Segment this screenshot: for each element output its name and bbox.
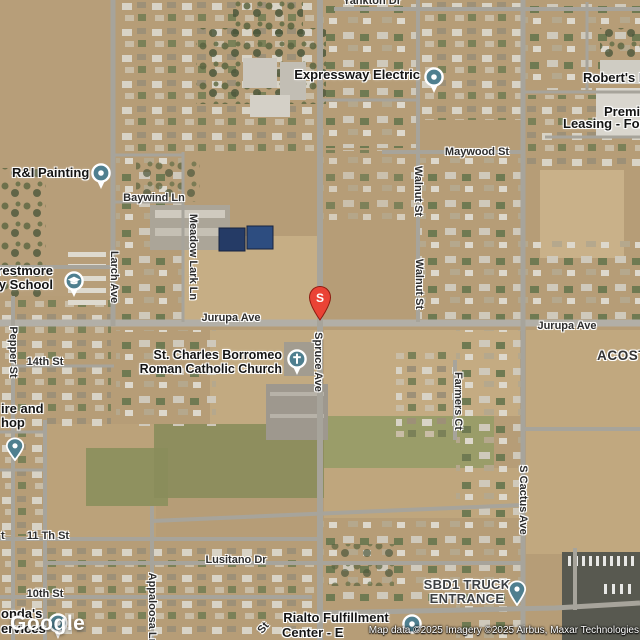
street-label-jurupa-ave-west: Jurupa Ave: [201, 312, 260, 324]
poi-label-school-line1: restmore: [0, 264, 53, 278]
dot-icon: [514, 586, 519, 591]
map-canvas[interactable]: Yankton Dr Jurupa Ave Jurupa Ave Maywood…: [0, 0, 640, 640]
area-label-acosta: ACOSTA: [597, 350, 640, 362]
poi-label-rialto-line1[interactable]: Rialto Fulfillment: [283, 611, 388, 625]
street-label-appaloosa-ln: Appaloosa Ln: [146, 573, 158, 640]
street-label-larch-ave: Larch Ave: [108, 251, 120, 303]
poi-marker-school[interactable]: [64, 271, 84, 303]
street-label-maywood-st: Maywood St: [445, 146, 509, 158]
poi-label-sbd1-line1: SBD1 TRUCK: [424, 578, 511, 592]
poi-marker-church[interactable]: [287, 349, 307, 381]
poi-label-school[interactable]: restmore ry School: [0, 264, 53, 292]
poi-label-school-line2: ry School: [0, 278, 53, 292]
street-label-11th-st: 11 Th St: [27, 530, 69, 542]
pin-letter: S: [316, 291, 324, 305]
poi-label-tire-line1: ire and: [1, 402, 44, 416]
poi-label-church-line1: St. Charles Borromeo: [140, 349, 282, 363]
poi-label-tire-shop[interactable]: ire and hop: [1, 402, 44, 430]
street-label-farmers-ct: Farmers Ct: [452, 372, 464, 430]
poi-marker-tire-shop[interactable]: [5, 437, 25, 466]
poi-label-roberts[interactable]: Robert's L: [583, 71, 640, 85]
street-label-meadow-lark-ln: Meadow Lark Ln: [187, 214, 199, 300]
poi-marker-r-and-i-painting[interactable]: [91, 163, 111, 195]
street-label-lusitano-dr: Lusitano Dr: [205, 554, 266, 566]
poi-label-sbd1-truck-entrance[interactable]: SBD1 TRUCK ENTRANCE: [424, 578, 511, 606]
poi-label-r-and-i-painting[interactable]: R&I Painting: [12, 166, 89, 180]
street-label-s-cactus-ave: S Cactus Ave: [517, 465, 529, 535]
street-label-baywind-ln: Baywind Ln: [123, 192, 185, 204]
map-attribution: Map data ©2025 Imagery ©2025 Airbus, Max…: [369, 625, 639, 636]
poi-label-tire-line2: hop: [1, 416, 44, 430]
street-label-walnut-st-north: Walnut St: [412, 166, 424, 216]
poi-label-rialto-line2[interactable]: Center - E: [282, 626, 343, 640]
poi-label-expressway-electric[interactable]: Expressway Electric: [294, 68, 420, 82]
poi-marker-sbd1-truck-entrance[interactable]: [507, 580, 527, 611]
street-label-walnut-st-south: Walnut St: [413, 259, 425, 309]
search-pin[interactable]: S: [307, 285, 333, 326]
street-label-fragment-t: t: [1, 530, 5, 542]
street-label-14th-st: 14th St: [27, 356, 64, 368]
street-label-yankton-dr: Yankton Dr: [343, 0, 401, 7]
dot-icon: [431, 74, 437, 80]
google-logo[interactable]: Google: [10, 612, 85, 636]
street-label-10th-st: 10th St: [27, 588, 64, 600]
poi-label-church-line2: Roman Catholic Church: [140, 363, 282, 377]
poi-marker-expressway-electric[interactable]: [424, 67, 444, 99]
street-label-spruce-ave: Spruce Ave: [312, 332, 324, 392]
dot-icon: [12, 443, 17, 448]
street-label-jurupa-ave-east: Jurupa Ave: [537, 320, 596, 332]
poi-label-church[interactable]: St. Charles Borromeo Roman Catholic Chur…: [140, 349, 282, 376]
dot-icon: [98, 170, 104, 176]
street-label-pepper-st: Pepper St: [7, 326, 19, 377]
poi-label-premium-line2[interactable]: Leasing - For: [563, 117, 640, 131]
poi-label-sbd1-line2: ENTRANCE: [424, 592, 511, 606]
